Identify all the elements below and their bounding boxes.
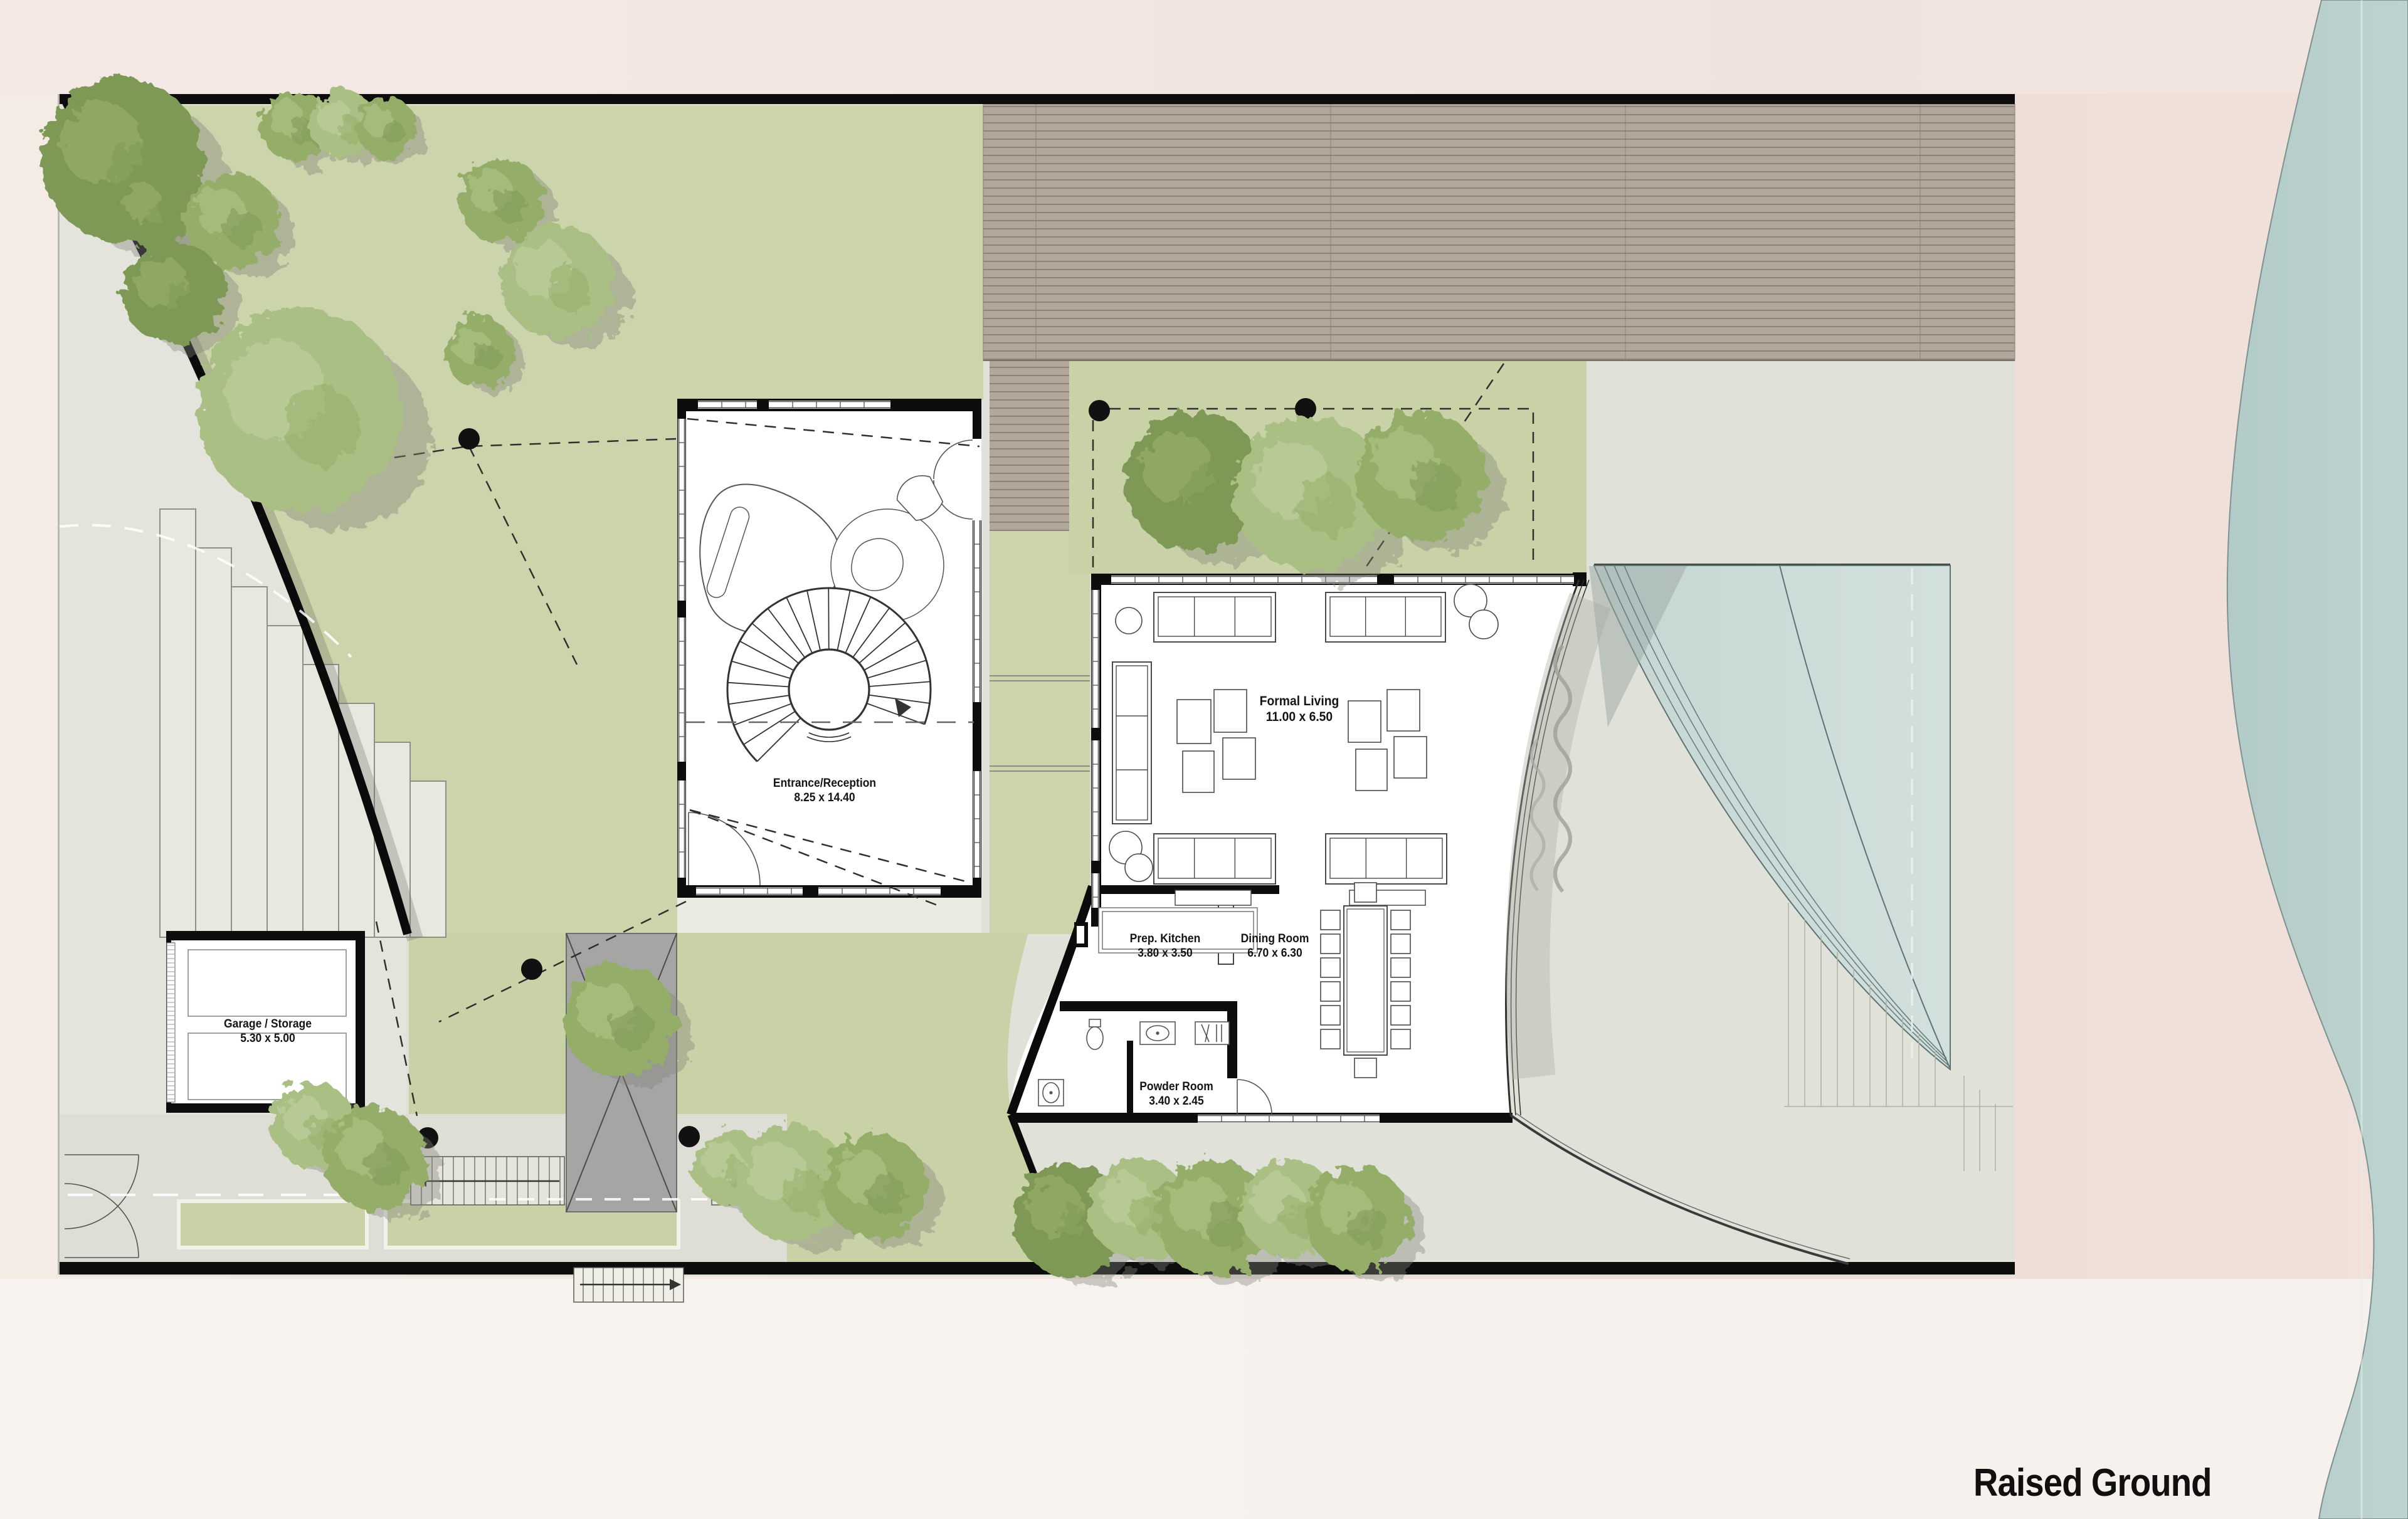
room-label-powder-room: Powder Room 3.40 x 2.45 bbox=[1139, 1080, 1213, 1108]
floor-title: Raised Ground bbox=[1973, 1461, 2212, 1505]
column-dot bbox=[458, 428, 480, 449]
room-dims: 6.70 x 6.30 bbox=[1241, 946, 1309, 960]
room-dims: 3.40 x 2.45 bbox=[1139, 1094, 1213, 1108]
plan-drawing bbox=[0, 0, 2408, 1519]
planter-strip bbox=[179, 1201, 367, 1248]
column-dot bbox=[1295, 398, 1316, 419]
room-label-entrance: Entrance/Reception 8.25 x 14.40 bbox=[773, 776, 876, 805]
room-name: Formal Living bbox=[1260, 693, 1339, 709]
floor-plan: Entrance/Reception 8.25 x 14.40 Formal L… bbox=[0, 0, 2408, 1519]
room-label-dining-room: Dining Room 6.70 x 6.30 bbox=[1241, 932, 1309, 960]
room-name: Dining Room bbox=[1241, 932, 1309, 946]
garage-door bbox=[167, 943, 175, 1102]
lawn-strip bbox=[990, 531, 1090, 934]
room-dims: 3.80 x 3.50 bbox=[1130, 946, 1201, 960]
wc-icon bbox=[1087, 1027, 1103, 1049]
room-label-garage: Garage / Storage 5.30 x 5.00 bbox=[224, 1017, 312, 1046]
room-name: Powder Room bbox=[1139, 1080, 1213, 1094]
wc-tank bbox=[1089, 1019, 1101, 1027]
room-label-prep-kitchen: Prep. Kitchen 3.80 x 3.50 bbox=[1130, 932, 1201, 960]
column-dot bbox=[521, 959, 542, 980]
walkway-south-of-entrance bbox=[677, 898, 981, 933]
site-edge-left bbox=[58, 94, 60, 1275]
room-name: Entrance/Reception bbox=[773, 776, 876, 791]
room-dims: 5.30 x 5.00 bbox=[224, 1031, 312, 1046]
parking-pad bbox=[188, 950, 346, 1016]
column-dot bbox=[679, 1126, 700, 1147]
entrance-door-opening bbox=[973, 439, 981, 520]
room-dims: 11.00 x 6.50 bbox=[1260, 709, 1339, 725]
kitchen-niche bbox=[1077, 926, 1084, 943]
shelf bbox=[1195, 1022, 1229, 1044]
room-dims: 8.25 x 14.40 bbox=[773, 791, 876, 805]
room-label-formal-living: Formal Living 11.00 x 6.50 bbox=[1260, 693, 1339, 725]
column-dot bbox=[1089, 400, 1110, 421]
room-name: Prep. Kitchen bbox=[1130, 932, 1201, 946]
room-name: Garage / Storage bbox=[224, 1017, 312, 1031]
